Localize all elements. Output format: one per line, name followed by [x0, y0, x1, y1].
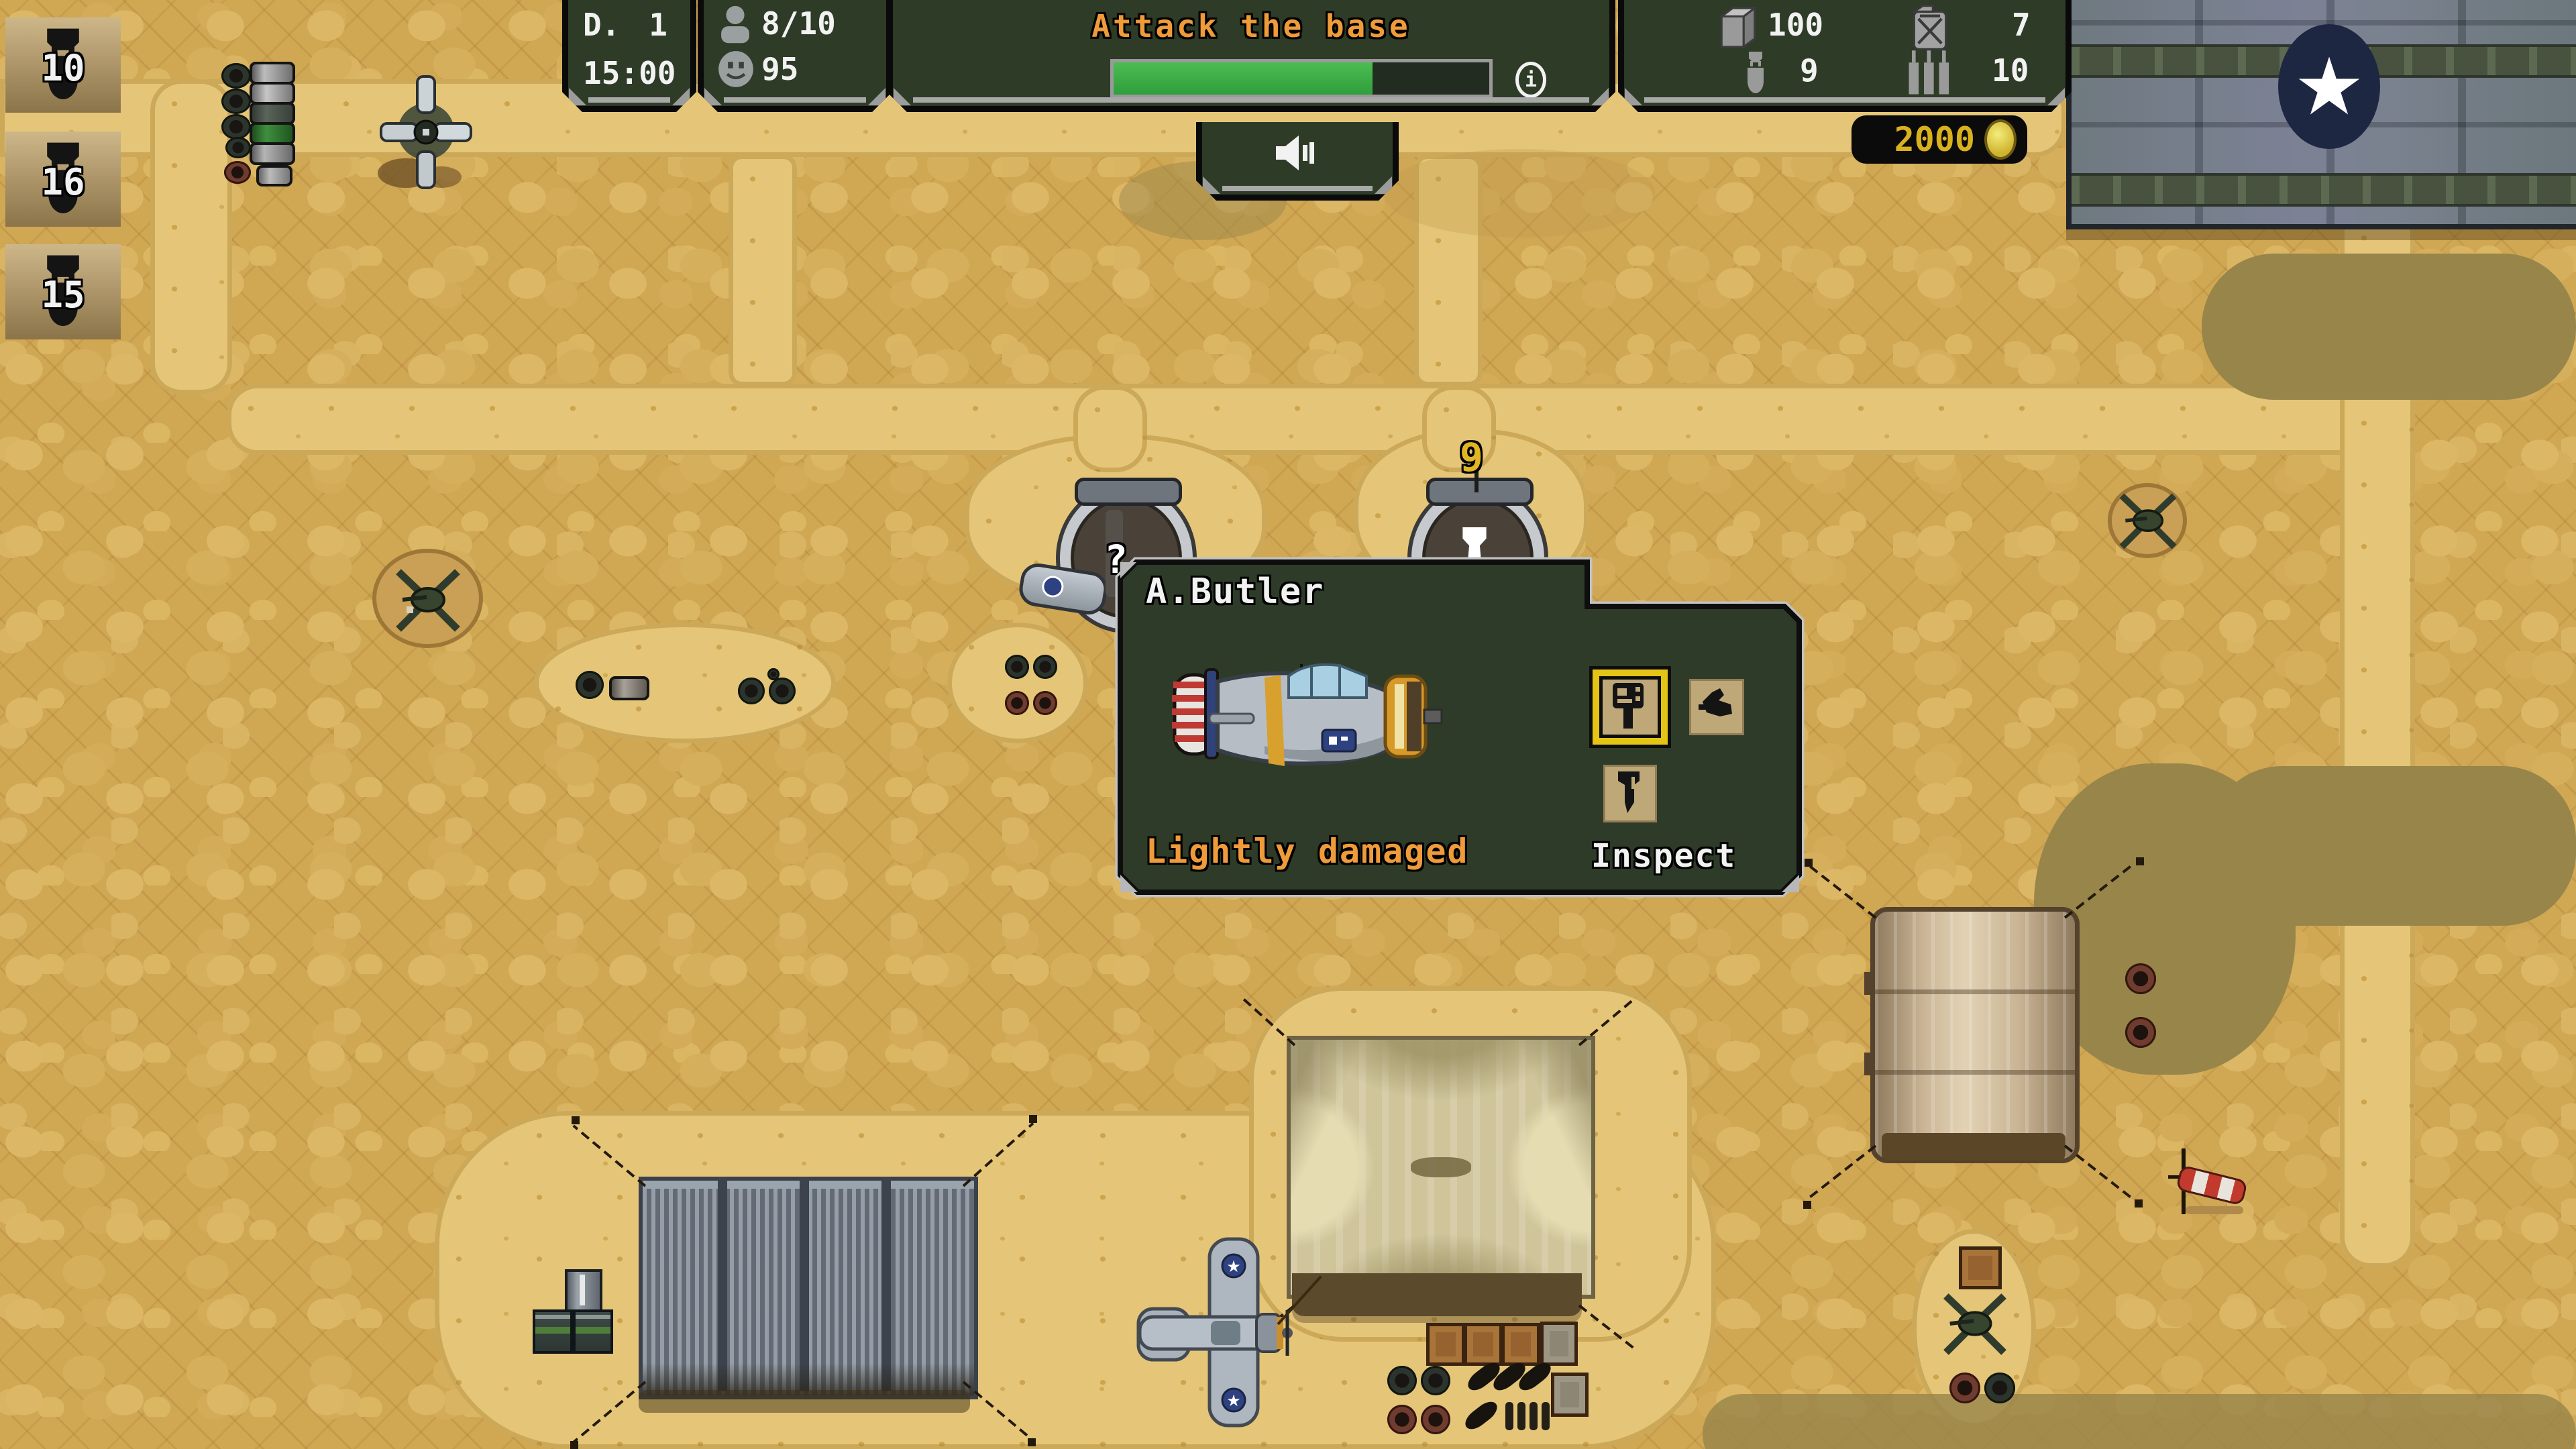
- supplies-icon: [1718, 5, 1758, 50]
- field-radio: [565, 1269, 602, 1313]
- wheel: [769, 678, 796, 704]
- aa-gun-west[interactable]: [390, 565, 466, 636]
- money-display: 2000: [1851, 115, 2027, 164]
- supply-crate: [1959, 1246, 2002, 1289]
- tire-stack: [221, 89, 251, 114]
- scrub-patch-east2: [2208, 766, 2576, 926]
- stake: [2135, 1199, 2143, 1207]
- grease-gun-icon: [1697, 687, 1736, 727]
- bomb-stock-count: 15: [5, 274, 121, 316]
- blast-wall-left: [1075, 478, 1182, 506]
- windsock: [2176, 1165, 2248, 1206]
- wheel-small: [767, 668, 780, 680]
- time-value: 15:00: [583, 55, 676, 91]
- ammo-icon: [1906, 50, 1954, 97]
- hangar-shadow: [2066, 229, 2576, 240]
- resources-panel: 100 9 7 10: [1618, 0, 2072, 112]
- scrub-patch-top2: [1383, 149, 1655, 237]
- supply-crate-gray: [1540, 1322, 1578, 1366]
- tire-stack: [221, 114, 251, 140]
- game-map: ? 9: [0, 0, 2576, 1449]
- day-label: D.: [583, 7, 620, 43]
- blade-icon: [1615, 770, 1645, 817]
- wheel: [1387, 1405, 1417, 1434]
- wheel: [1421, 1366, 1450, 1395]
- stake: [572, 1116, 580, 1124]
- shed-ground-shadow: [639, 1390, 970, 1413]
- info-icon: i: [1525, 68, 1537, 92]
- tent-ground-band: [1292, 1273, 1582, 1316]
- guy-wire: [1806, 863, 1876, 918]
- refuel-button-selected[interactable]: [1593, 669, 1668, 745]
- supply-crate: [1501, 1323, 1540, 1366]
- wheel: [1949, 1373, 1980, 1403]
- bomb-stock-button-2[interactable]: 16: [5, 131, 121, 227]
- windsock-shadow: [2186, 1206, 2243, 1214]
- sand-path-connector-a: [729, 154, 797, 386]
- supply-drum: [250, 62, 295, 85]
- stake: [1029, 1115, 1037, 1123]
- wheel: [1033, 691, 1057, 715]
- objective-panel: Attack the base i: [887, 0, 1615, 112]
- money-value: 2000: [1894, 120, 1975, 159]
- artillery-shell: [1505, 1402, 1513, 1430]
- guy-wire: [2064, 1144, 2135, 1200]
- supply-drum: [250, 82, 295, 105]
- bomb-stock-button-3[interactable]: 15: [5, 244, 121, 339]
- fuel-icon: [1911, 4, 1949, 51]
- fuel-value: 7: [2012, 7, 2031, 43]
- svg-text:★: ★: [1226, 1257, 1241, 1276]
- star-icon: ★: [2294, 47, 2365, 126]
- bombs-icon: [1742, 51, 1769, 95]
- aa-gun-northeast[interactable]: [2114, 490, 2182, 553]
- blast-wall-right: [1426, 478, 1534, 506]
- dialog-status: Lightly damaged: [1146, 832, 1469, 871]
- crew-count: 8/10: [761, 5, 836, 42]
- windmill[interactable]: [376, 72, 476, 193]
- corrugated-shed[interactable]: [639, 1177, 978, 1399]
- scrub-patch-northeast: [2202, 254, 2576, 400]
- dialog-aircraft-sprite: [1164, 635, 1452, 806]
- sand-conn-hangar-right: [1422, 385, 1496, 472]
- stake: [1803, 1201, 1811, 1209]
- morale-icon: [717, 50, 755, 89]
- wheel: [1421, 1405, 1450, 1434]
- sand-path-band2: [227, 384, 2415, 455]
- supply-drum-small: [609, 676, 649, 700]
- guy-wire: [1806, 1144, 1876, 1200]
- coin-icon: [1984, 119, 2017, 160]
- wheel: [1033, 655, 1057, 679]
- dialog-inspect-button[interactable]: Inspect: [1591, 837, 1736, 875]
- wheel: [1005, 691, 1029, 715]
- fuel-pump-icon: [1610, 680, 1650, 734]
- supply-drum-small: [256, 165, 292, 186]
- bomb-stock-count: 10: [5, 47, 121, 89]
- morale-value: 95: [761, 51, 798, 87]
- fuel-barrel: [533, 1309, 573, 1354]
- supply-crate: [1464, 1323, 1503, 1366]
- ammo-value: 10: [1992, 52, 2029, 89]
- large-tent[interactable]: [1287, 1036, 1595, 1299]
- speaker-button[interactable]: [1196, 122, 1399, 201]
- service-button[interactable]: [1603, 765, 1657, 822]
- day-time-panel: D. 1 15:00: [562, 0, 696, 112]
- wheel: [2125, 963, 2156, 994]
- sand-conn-hangar-left: [1073, 385, 1147, 472]
- stake: [1028, 1438, 1036, 1446]
- supplies-value: 100: [1768, 7, 1823, 43]
- objective-progress-bar: [1110, 59, 1493, 98]
- star-roundel: ★: [2278, 24, 2380, 149]
- hangar-bomb-count: 9: [1460, 435, 1483, 480]
- sand-oval-items2: [947, 623, 1088, 743]
- supply-drum: [250, 102, 295, 125]
- scrub-patch-south: [1703, 1394, 2576, 1449]
- sand-path-left-vertical: [150, 79, 232, 394]
- svg-text:★: ★: [1226, 1391, 1241, 1410]
- objective-title: Attack the base: [893, 8, 1609, 44]
- supply-drum-green: [250, 122, 295, 145]
- wheel: [576, 671, 604, 699]
- artillery-shell: [1529, 1402, 1538, 1430]
- artillery-shell: [1517, 1402, 1525, 1430]
- parked-fighter-plane[interactable]: ★ ★: [1130, 1231, 1298, 1432]
- supply-crate-gray: [1551, 1373, 1589, 1417]
- artillery-shell: [1542, 1402, 1550, 1430]
- speaker-icon: [1272, 134, 1323, 172]
- wheel: [1387, 1366, 1417, 1395]
- wheel: [2125, 1017, 2156, 1048]
- wheel: [738, 678, 765, 704]
- hangar-building[interactable]: ★: [2066, 0, 2576, 229]
- repair-button[interactable]: [1689, 679, 1744, 735]
- objective-progress-fill: [1114, 62, 1373, 95]
- bomb-stock-button-1[interactable]: 10: [5, 17, 121, 113]
- roof-truss: [2072, 173, 2576, 207]
- wheel: [1984, 1373, 2015, 1403]
- supply-crate: [1426, 1323, 1465, 1366]
- wheel: [225, 137, 251, 158]
- bombs-value: 9: [1800, 52, 1819, 89]
- aa-gun-southeast[interactable]: [1936, 1289, 2014, 1359]
- day-value: 1: [649, 7, 667, 43]
- stake: [2136, 857, 2144, 865]
- bomb-stock-count: 16: [5, 161, 121, 203]
- crew-panel: 8/10 95: [698, 0, 892, 112]
- objective-info-button[interactable]: i: [1515, 62, 1546, 98]
- storage-tank[interactable]: [1870, 907, 2080, 1163]
- crew-icon: [720, 4, 751, 44]
- stake: [570, 1441, 578, 1449]
- wheel: [1005, 655, 1029, 679]
- wheel: [224, 161, 251, 184]
- tire-stack: [221, 63, 251, 89]
- supply-drum: [250, 142, 295, 165]
- fuel-barrel: [573, 1309, 613, 1354]
- dialog-title: A.Butler: [1146, 572, 1324, 612]
